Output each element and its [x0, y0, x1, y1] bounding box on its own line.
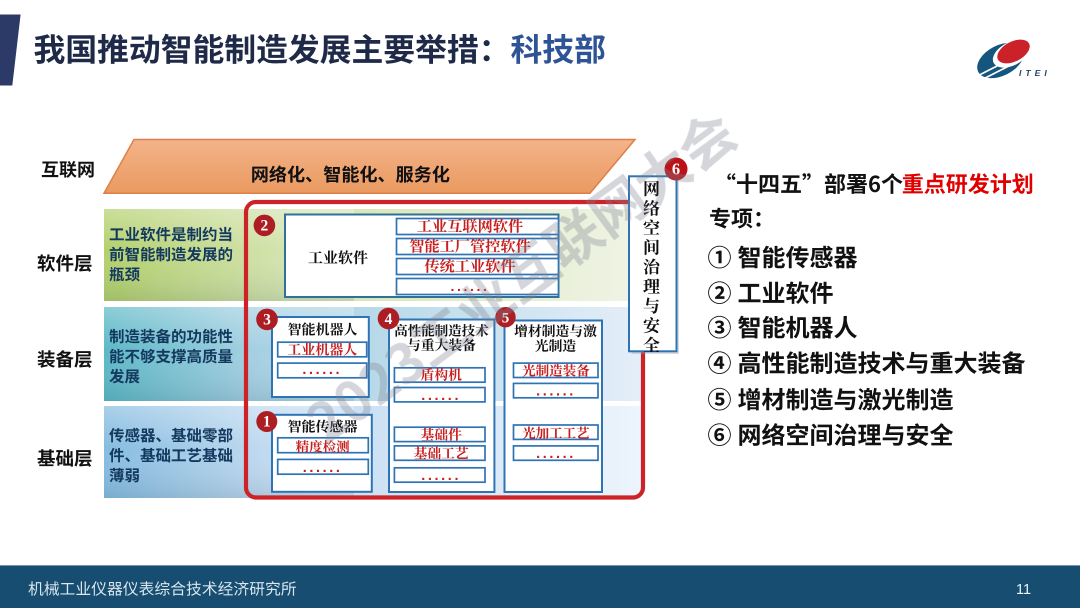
- svg-text:......: ......: [536, 384, 576, 400]
- svg-text:3: 3: [263, 312, 271, 329]
- svg-text:......: ......: [421, 468, 461, 484]
- svg-text:......: ......: [302, 362, 342, 378]
- svg-text:......: ......: [421, 388, 461, 404]
- svg-text:4: 4: [385, 311, 393, 328]
- svg-text:1: 1: [263, 414, 271, 431]
- svg-text:2: 2: [261, 218, 269, 235]
- svg-text:......: ......: [303, 460, 343, 476]
- svg-text:11: 11: [1016, 582, 1031, 598]
- svg-text:ITEI: ITEI: [1019, 68, 1051, 78]
- svg-text:......: ......: [536, 446, 576, 462]
